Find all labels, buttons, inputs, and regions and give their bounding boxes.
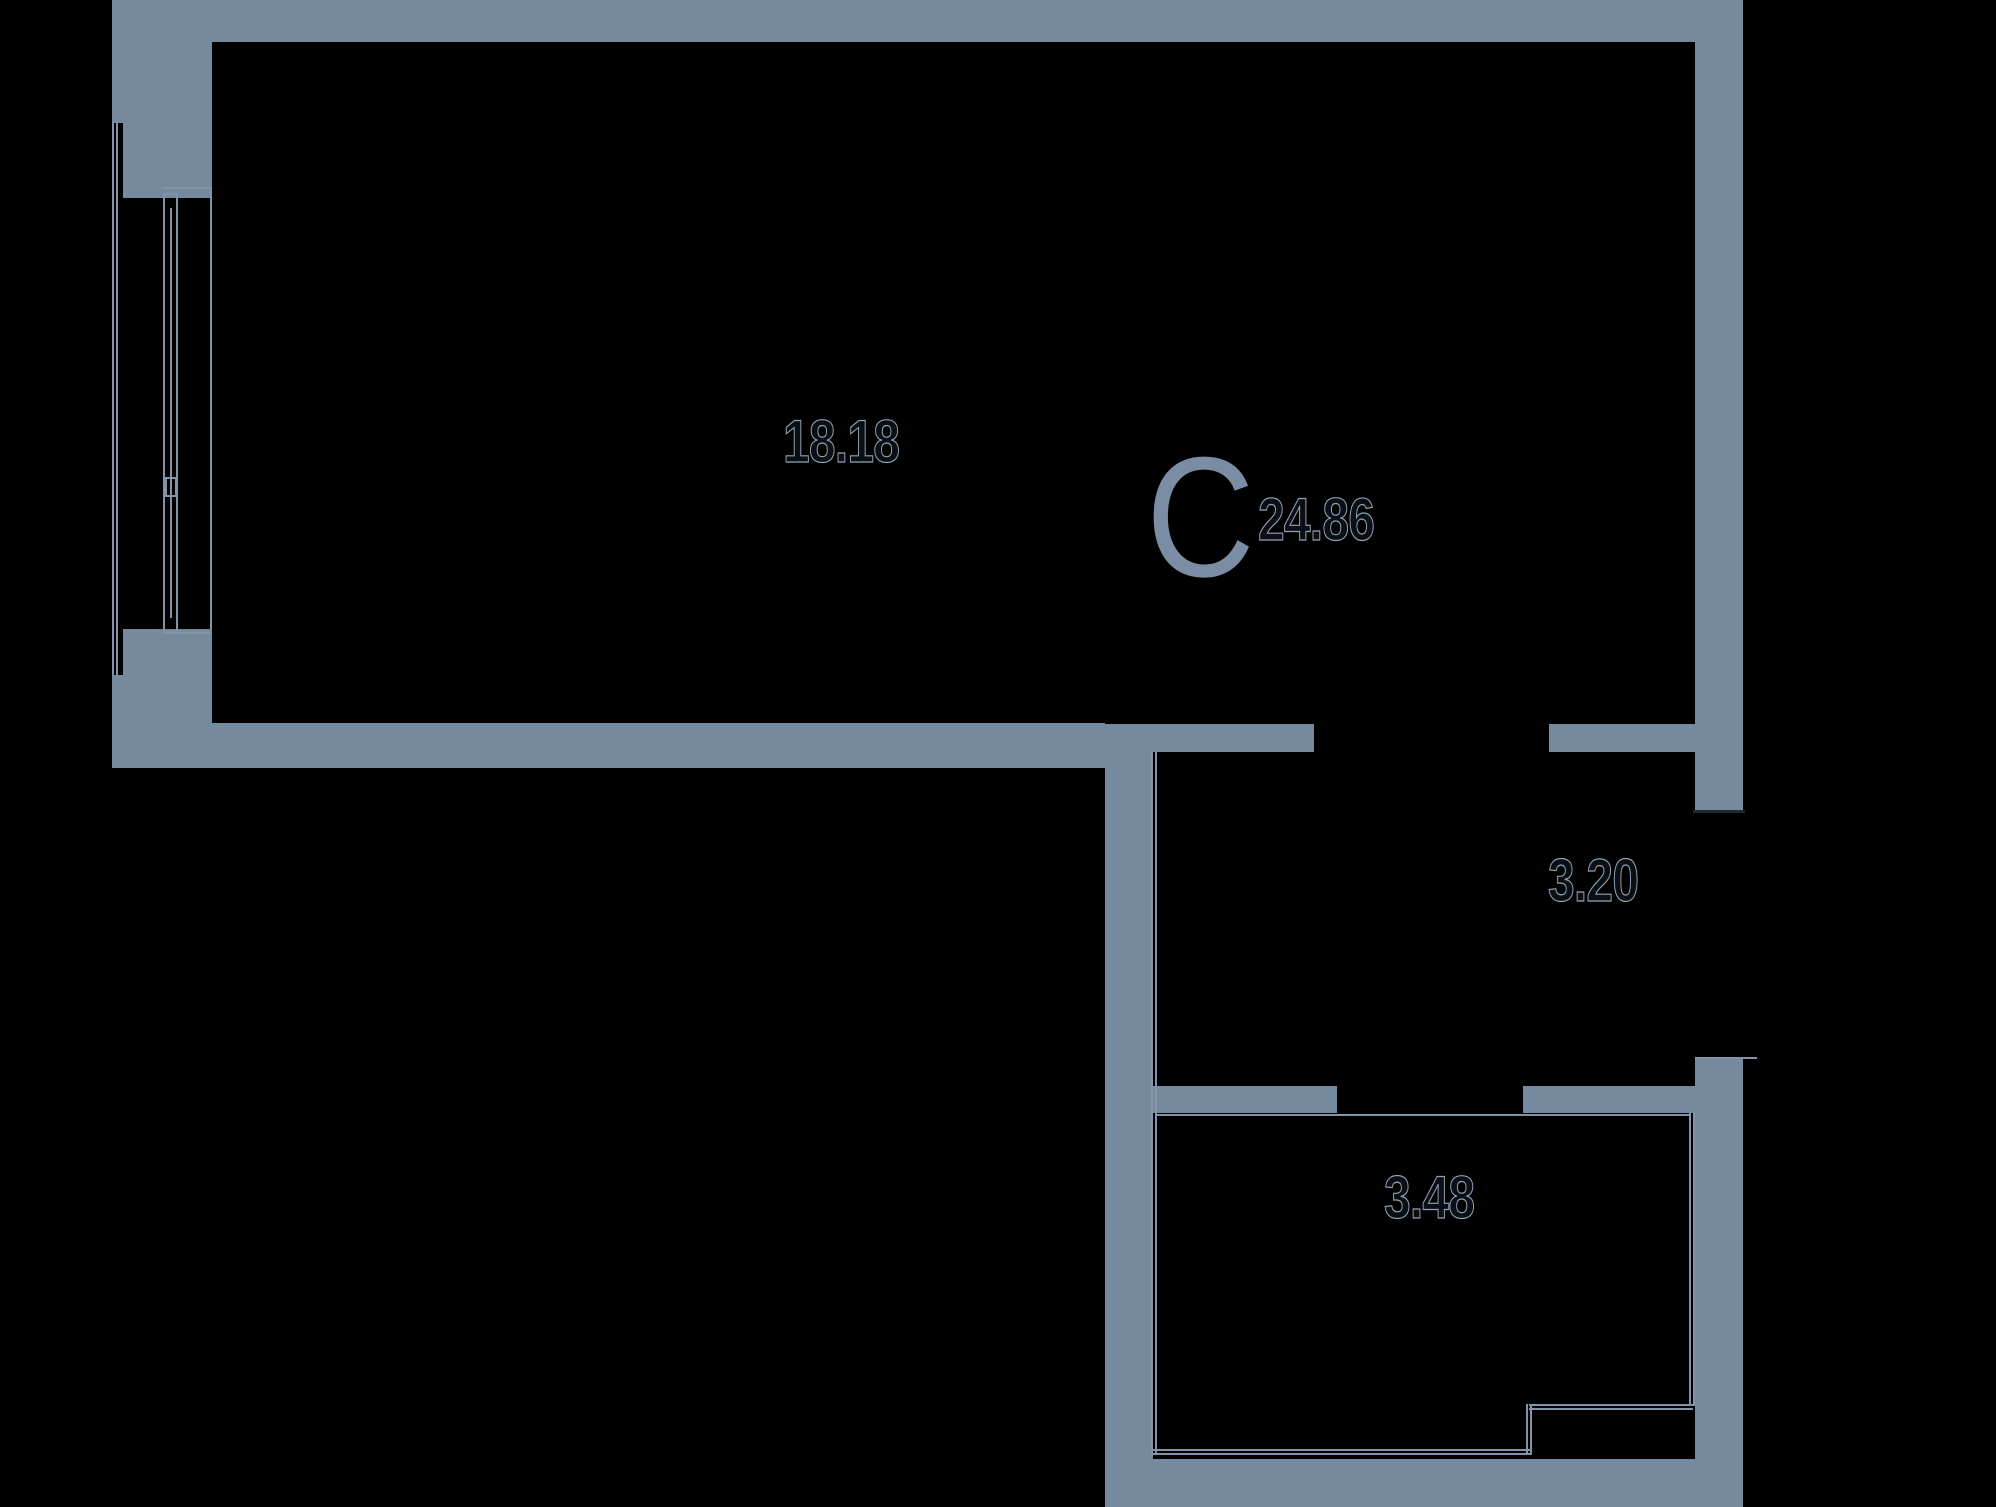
wall-partition-left-of-door <box>1153 724 1314 752</box>
wall-right-lower <box>1695 1059 1743 1507</box>
wall-corridor-left <box>1105 724 1153 1507</box>
bathroom-step-top-line-2 <box>1529 1408 1693 1410</box>
wall-top-exterior <box>112 0 1743 42</box>
window-mid-connector <box>165 477 177 497</box>
hallway-inner-line-1 <box>1151 752 1153 1453</box>
wall-bathroom-top-right <box>1523 1086 1695 1113</box>
right-wall-lower-top-line <box>1695 1057 1757 1059</box>
wall-bathroom-top-left <box>1150 1086 1337 1113</box>
bathroom-right-inner-line-1 <box>1689 1113 1691 1406</box>
bathroom-step-top-line-1 <box>1529 1404 1693 1406</box>
hallway-area-label: 3.20 <box>1548 851 1638 911</box>
bathroom-bottom-line-2 <box>1151 1453 1530 1455</box>
bathroom-step-vert-line-1 <box>1526 1404 1528 1455</box>
wall-bottom-band <box>1105 1459 1743 1507</box>
balcony-outer-line-2 <box>116 123 118 675</box>
bathroom-bottom-line-1 <box>1151 1449 1530 1451</box>
living-room-area-label: 18.18 <box>783 412 899 472</box>
wall-left-lower <box>123 629 212 723</box>
bathroom-area-label: 3.48 <box>1384 1168 1474 1228</box>
bathroom-step-vert-line-2 <box>1530 1404 1532 1455</box>
floorplan-canvas: 18.18 C 24.86 3.20 3.48 <box>0 0 1996 1507</box>
entrance-threshold-line <box>1693 810 1745 813</box>
living-room-left-inner-line <box>210 188 212 629</box>
window-glazing-line <box>170 208 172 618</box>
window-sill-top-line <box>163 187 212 189</box>
unit-type-letter: C <box>1146 432 1255 603</box>
bathroom-door-threshold-line <box>1155 1114 1690 1116</box>
bathroom-right-inner-line-2 <box>1693 1113 1695 1406</box>
wall-left-upper <box>112 0 212 123</box>
wall-living-bottom <box>112 723 1105 768</box>
wall-partition-right-of-door <box>1549 724 1695 752</box>
hallway-inner-line-2 <box>1155 752 1157 1453</box>
total-area-label: 24.86 <box>1258 490 1374 550</box>
wall-left-lower-sliver <box>112 675 123 723</box>
wall-right-upper <box>1695 0 1743 812</box>
balcony-outer-line-1 <box>112 123 114 675</box>
